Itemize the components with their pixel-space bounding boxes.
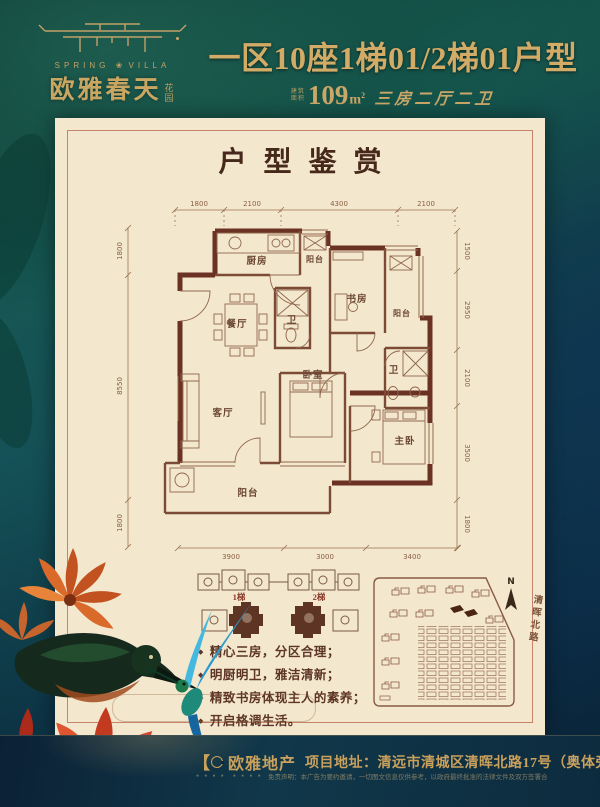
svg-text:1800: 1800 (463, 515, 471, 533)
keyplan-labels: 1梯 2梯 (233, 592, 326, 602)
poster-root: SPRING ❀ VILLA 欧雅春天 花园 一区10座1梯01/2梯01户型 … (0, 0, 600, 807)
svg-text:1800: 1800 (116, 514, 124, 532)
flower-icon: ❀ (116, 61, 123, 70)
footer-tagline-marks: ● ● ● ● ● ● ● ● (196, 772, 263, 779)
bullet-icon: ◆ (198, 648, 204, 656)
logo-en-left: SPRING (55, 61, 110, 70)
panel-title: 户型鉴赏 (55, 140, 545, 180)
svg-text:3000: 3000 (316, 553, 334, 561)
logo-en-right: VILLA (129, 61, 171, 70)
area-unit: m2 (349, 91, 365, 109)
header-title-block: 一区10座1梯01/2梯01户型 建筑面积 109 m2 三房二厅二卫 (200, 33, 586, 111)
svg-text:2梯: 2梯 (313, 592, 326, 602)
svg-text:4300: 4300 (330, 200, 348, 208)
feature-item: ◆明厨明卫，雅洁清新； (198, 664, 383, 683)
north-arrow-icon: N (505, 577, 517, 610)
feature-item: ◆精心三房，分区合理； (198, 641, 383, 660)
svg-text:卫: 卫 (389, 365, 400, 376)
svg-text:客厅: 客厅 (211, 407, 233, 419)
footer-brand: 欧雅地产 (228, 750, 296, 774)
map-highlight (450, 605, 478, 617)
logo-cn-sub: 花园 (165, 84, 176, 104)
svg-text:1梯: 1梯 (233, 592, 246, 602)
svg-text:阳台: 阳台 (393, 308, 411, 318)
svg-text:阳台: 阳台 (306, 254, 324, 264)
svg-text:卧室: 卧室 (302, 369, 323, 381)
scroll-cartouche (112, 694, 316, 722)
page-title: 一区10座1梯01/2梯01户型 (200, 33, 586, 79)
map-buildings (380, 586, 506, 700)
area-prefix: 建筑面积 (291, 89, 305, 103)
area-value: 109 (308, 80, 349, 111)
brand-logo: SPRING ❀ VILLA 欧雅春天 花园 (25, 20, 200, 106)
footer-disclaimer: 免责声明：本广告为要约邀请，一切图文信息仅供参考，以政府最终批准的法律文件及双方… (268, 771, 548, 781)
svg-text:主卧: 主卧 (394, 435, 415, 447)
svg-text:2100: 2100 (417, 200, 435, 208)
svg-text:3500: 3500 (463, 444, 471, 462)
gate-logo-icon (25, 20, 200, 56)
svg-text:3400: 3400 (403, 553, 421, 561)
svg-text:1800: 1800 (190, 200, 208, 208)
logo-english: SPRING ❀ VILLA (25, 61, 200, 70)
bullet-icon: ◆ (198, 671, 204, 679)
keyplan-outlines (198, 570, 359, 631)
svg-text:2100: 2100 (243, 200, 261, 208)
footer-band: 【 欧雅地产 项目地址：清远市清城区清晖北路17号（奥体旁） ● ● ● ● ●… (0, 735, 600, 807)
svg-text:书房: 书房 (346, 293, 367, 305)
dimension-lines (125, 207, 461, 551)
svg-text:2950: 2950 (463, 301, 471, 319)
svg-text:N: N (507, 577, 515, 587)
svg-text:厨房: 厨房 (246, 255, 267, 267)
project-address: 项目地址：清远市清城区清晖北路17号（奥体旁） (305, 752, 600, 772)
svg-text:8550: 8550 (116, 377, 124, 395)
bracket-glyph: 【 (193, 749, 210, 774)
svg-text:2100: 2100 (463, 369, 471, 387)
logo-dot-icon (176, 37, 179, 40)
area-subtitle: 建筑面积 109 m2 三房二厅二卫 (200, 80, 586, 111)
area-description: 三房二厅二卫 (374, 85, 497, 109)
svg-text:1800: 1800 (116, 242, 124, 260)
svg-text:1500: 1500 (463, 242, 471, 260)
svg-text:阳台: 阳台 (237, 487, 258, 499)
keyplan-highlight-units (229, 602, 325, 638)
logo-chinese: 欧雅春天 花园 (25, 70, 200, 106)
site-map: N (366, 572, 530, 714)
brand-mark-icon (211, 756, 223, 768)
svg-text:卫: 卫 (287, 315, 298, 326)
svg-text:餐厅: 餐厅 (225, 318, 247, 330)
svg-text:3900: 3900 (222, 553, 240, 561)
floor-plan: 1800 2100 4300 2100 3900 3000 3400 1800 … (85, 196, 515, 568)
logo-cn-main: 欧雅春天 (49, 70, 161, 106)
